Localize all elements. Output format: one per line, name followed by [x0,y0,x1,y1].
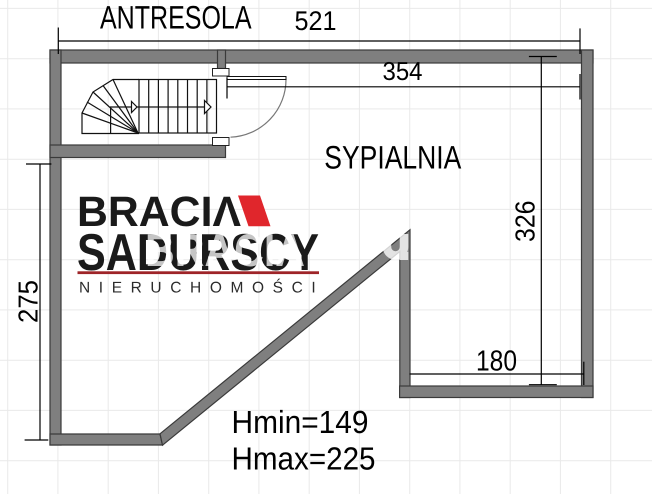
svg-text:ANTRESOLA: ANTRESOLA [100,0,252,36]
svg-text:BRACIA: BRACIA [145,224,305,276]
svg-text:275: 275 [13,280,44,323]
svg-text:NIERUCHOMOŚCI: NIERUCHOMOŚCI [79,279,324,297]
svg-text:354: 354 [383,56,423,86]
svg-text:180: 180 [476,346,517,378]
svg-text:521: 521 [295,6,337,36]
svg-text:Hmax=225: Hmax=225 [232,441,376,477]
svg-text:Hmin=149: Hmin=149 [232,404,369,440]
svg-text:326: 326 [510,201,541,243]
svg-text:SYPIALNIA: SYPIALNIA [324,140,461,176]
